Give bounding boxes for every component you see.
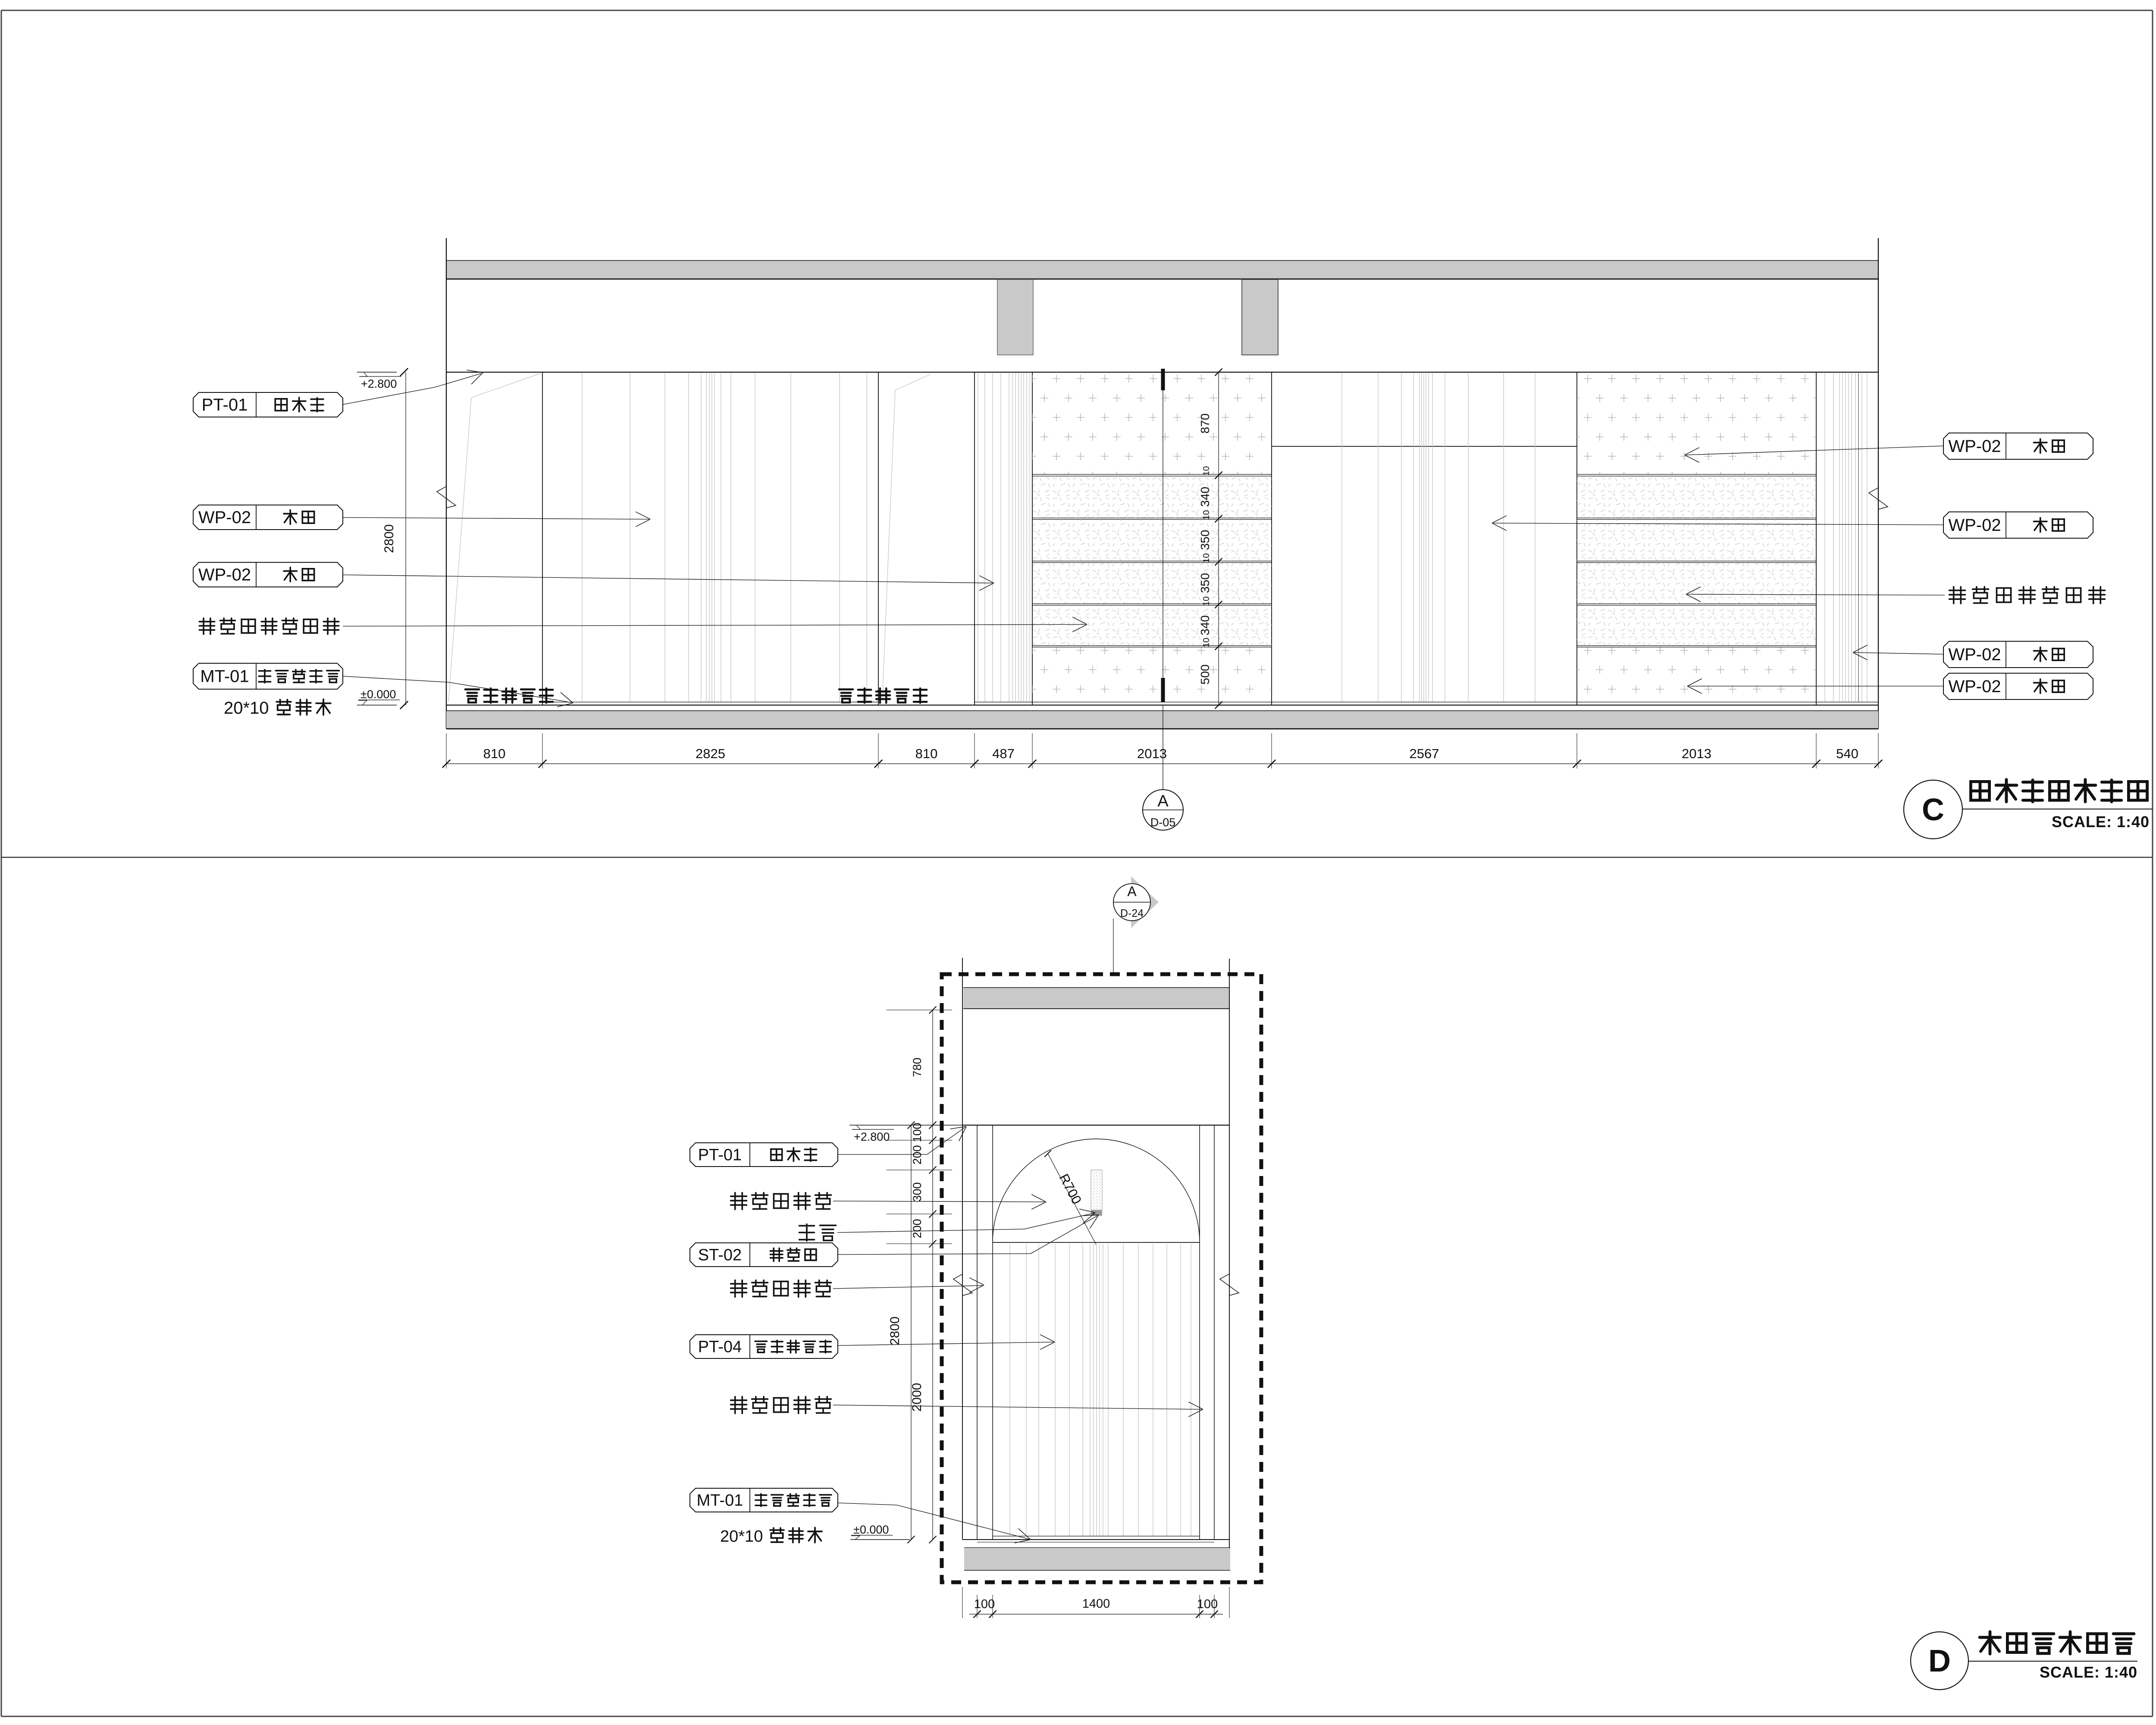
svg-text:WP-02: WP-02 <box>1948 516 2001 535</box>
svg-text:SCALE: 1:40: SCALE: 1:40 <box>2052 813 2150 831</box>
svg-text:WP-02: WP-02 <box>198 508 251 527</box>
svg-text:2825: 2825 <box>696 746 725 761</box>
svg-text:PT-04: PT-04 <box>698 1338 742 1356</box>
svg-text:D-05: D-05 <box>1150 816 1176 829</box>
svg-text:MT-01: MT-01 <box>697 1491 743 1509</box>
svg-text:10: 10 <box>1202 466 1211 476</box>
svg-text:PT-01: PT-01 <box>698 1146 742 1164</box>
svg-text:2013: 2013 <box>1682 746 1711 761</box>
svg-text:780: 780 <box>911 1057 924 1077</box>
svg-text:810: 810 <box>915 746 938 761</box>
svg-text:300: 300 <box>911 1182 924 1201</box>
svg-text:487: 487 <box>992 746 1015 761</box>
svg-text:340: 340 <box>1198 487 1212 507</box>
svg-text:+2.800: +2.800 <box>854 1130 890 1143</box>
svg-text:±0.000: ±0.000 <box>853 1523 889 1536</box>
svg-text:SCALE: 1:40: SCALE: 1:40 <box>2040 1663 2137 1681</box>
svg-text:WP-02: WP-02 <box>198 565 251 584</box>
svg-text:WP-02: WP-02 <box>1948 645 2001 664</box>
svg-text:20*10: 20*10 <box>720 1527 763 1546</box>
svg-text:100: 100 <box>1197 1597 1218 1611</box>
svg-text:540: 540 <box>1836 746 1858 761</box>
svg-text:20*10: 20*10 <box>224 699 269 718</box>
svg-text:A: A <box>1157 792 1169 810</box>
svg-text:350: 350 <box>1198 530 1212 550</box>
svg-text:2567: 2567 <box>1410 746 1439 761</box>
svg-text:500: 500 <box>1198 665 1212 685</box>
svg-text:WP-02: WP-02 <box>1948 677 2001 696</box>
svg-text:350: 350 <box>1198 573 1212 593</box>
svg-text:10: 10 <box>1202 510 1211 520</box>
svg-text:WP-02: WP-02 <box>1948 437 2001 456</box>
svg-text:C: C <box>1922 793 1944 827</box>
svg-text:340: 340 <box>1198 615 1212 636</box>
svg-text:810: 810 <box>483 746 506 761</box>
svg-text:2800: 2800 <box>888 1317 902 1345</box>
svg-text:±0.000: ±0.000 <box>360 688 396 701</box>
svg-text:1400: 1400 <box>1082 1597 1110 1611</box>
svg-text:10: 10 <box>1202 553 1211 563</box>
svg-text:2800: 2800 <box>382 524 396 553</box>
svg-text:100: 100 <box>974 1597 995 1611</box>
svg-text:2013: 2013 <box>1137 746 1167 761</box>
svg-text:870: 870 <box>1198 414 1212 434</box>
svg-text:D: D <box>1928 1644 1951 1678</box>
svg-text:200: 200 <box>911 1219 924 1238</box>
svg-text:D-24: D-24 <box>1120 907 1144 919</box>
svg-text:PT-01: PT-01 <box>202 395 248 414</box>
svg-text:MT-01: MT-01 <box>200 667 249 686</box>
svg-text:100: 100 <box>911 1123 924 1142</box>
svg-text:2000: 2000 <box>910 1383 924 1412</box>
svg-text:ST-02: ST-02 <box>698 1246 742 1264</box>
svg-text:+2.800: +2.800 <box>361 377 397 390</box>
svg-text:10: 10 <box>1202 638 1211 647</box>
svg-text:200: 200 <box>911 1145 924 1164</box>
svg-text:10: 10 <box>1202 596 1211 606</box>
svg-text:A: A <box>1127 884 1137 899</box>
